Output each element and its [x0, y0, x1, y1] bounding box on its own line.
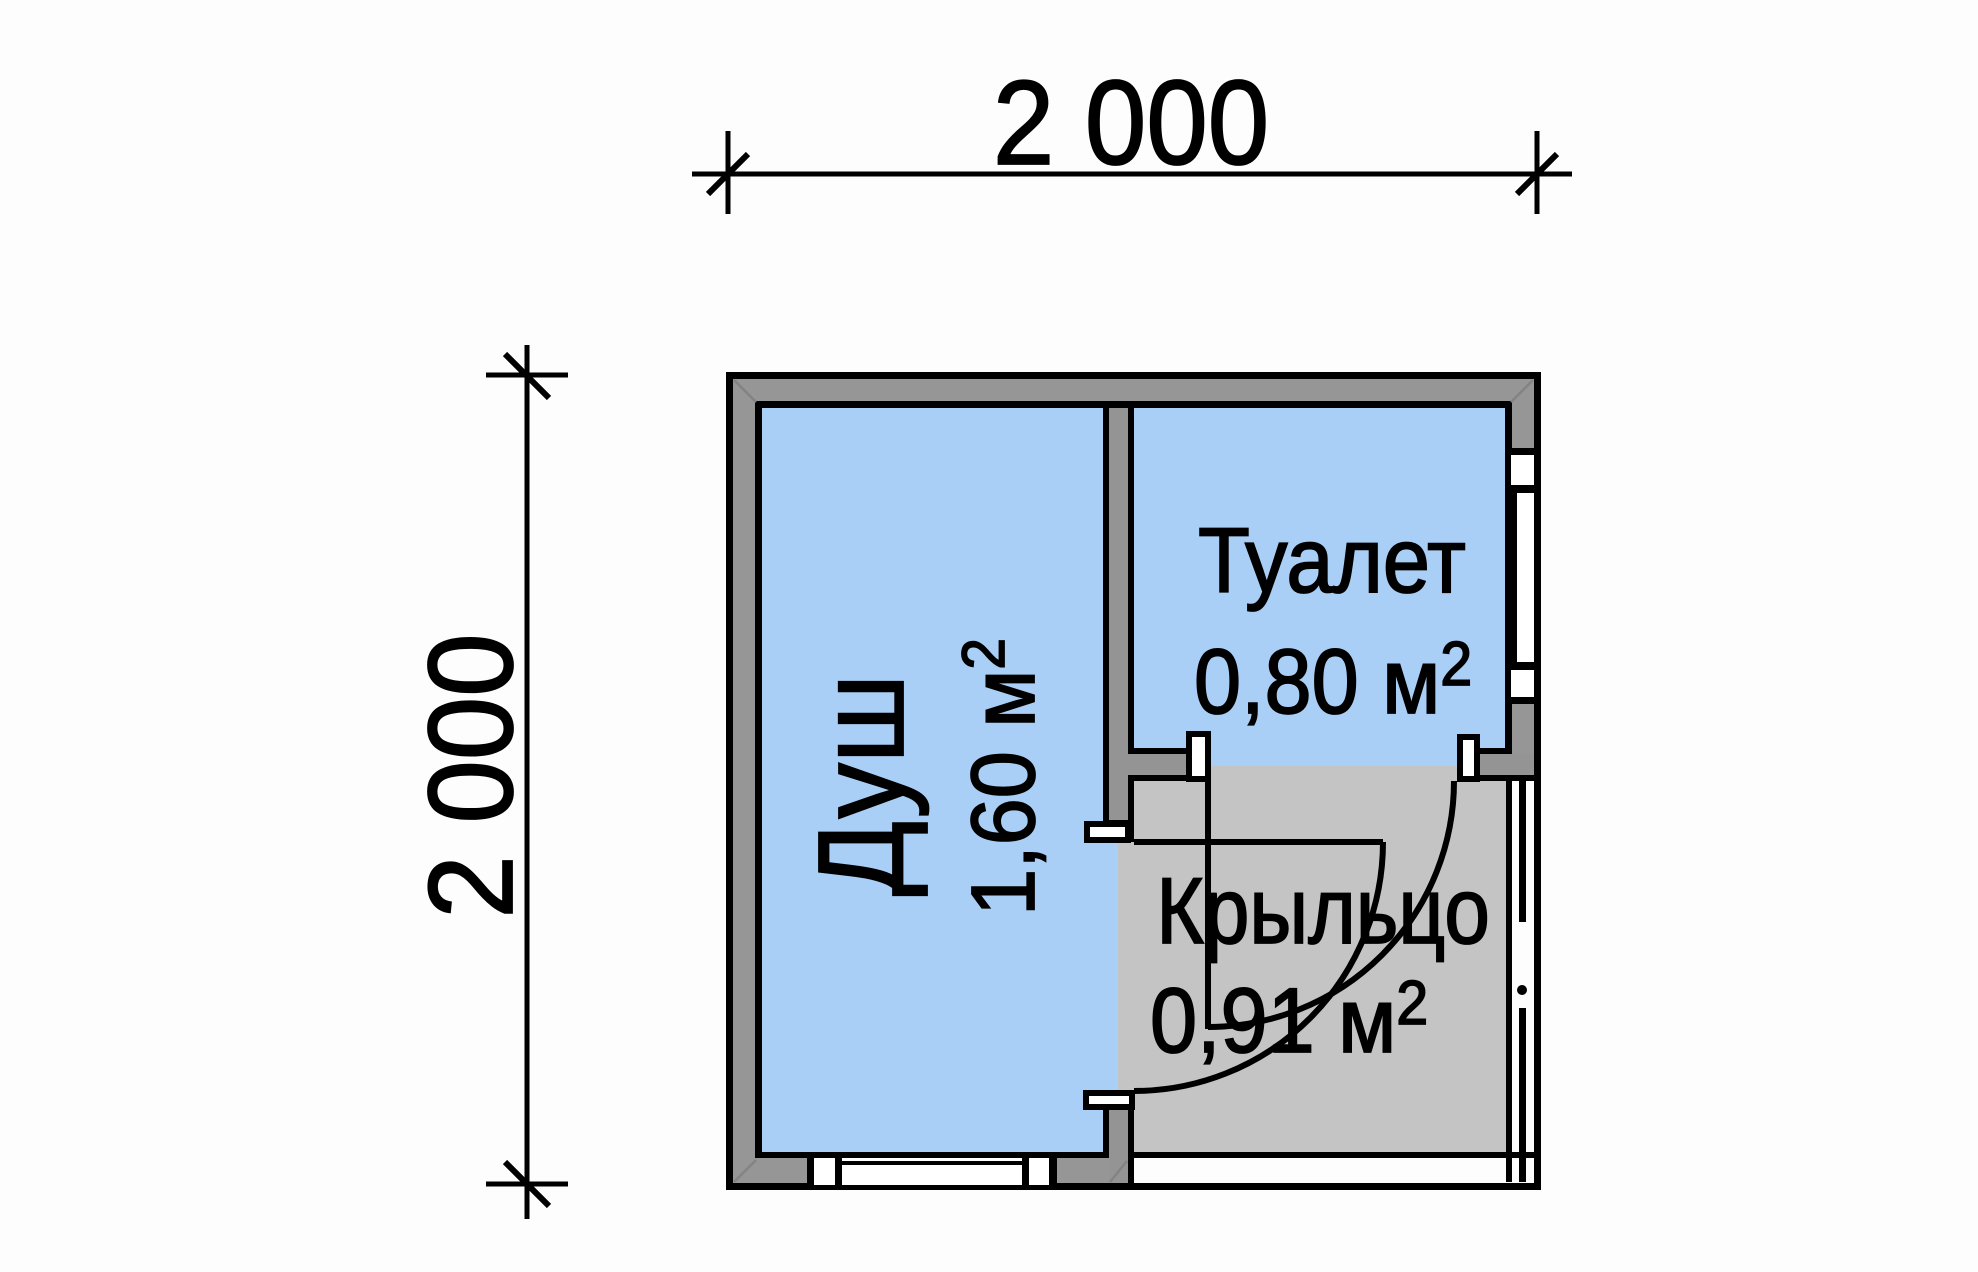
svg-text:0,91 м2: 0,91 м2 [1150, 968, 1428, 1072]
svg-text:Душ: Душ [792, 674, 929, 896]
svg-text:1,60 м2: 1,60 м2 [950, 638, 1053, 916]
svg-text:Крыльцо: Крыльцо [1156, 858, 1490, 964]
svg-text:2 000: 2 000 [993, 57, 1269, 190]
svg-text:0,80 м2: 0,80 м2 [1194, 629, 1472, 733]
svg-text:Туалет: Туалет [1198, 509, 1466, 612]
svg-text:2 000: 2 000 [403, 633, 537, 918]
